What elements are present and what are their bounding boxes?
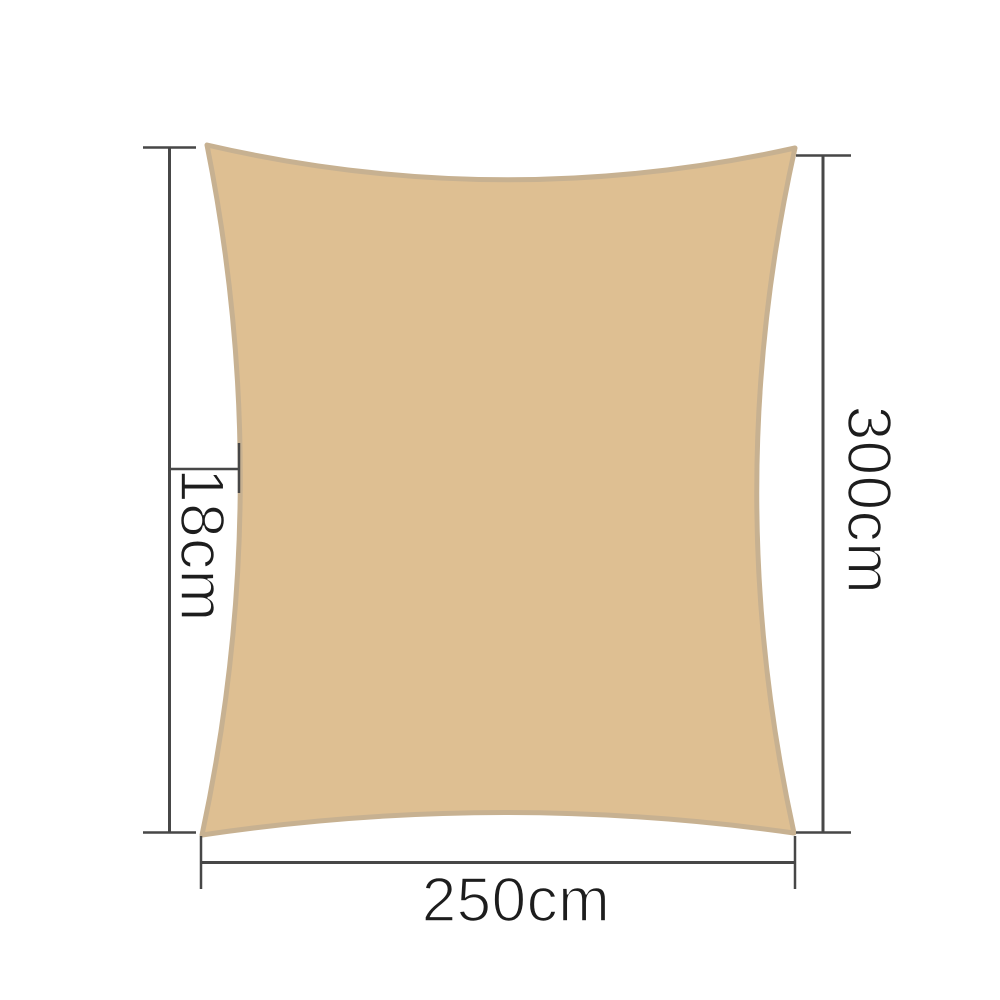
height-dimension-label: 300cm [837, 406, 899, 595]
sag-dimension-label: 18cm [170, 468, 232, 622]
width-dimension-label: 250cm [422, 870, 611, 932]
shade-sail-shape [202, 145, 795, 835]
product-dimension-diagram: 250cm 300cm 18cm [0, 0, 1000, 1000]
